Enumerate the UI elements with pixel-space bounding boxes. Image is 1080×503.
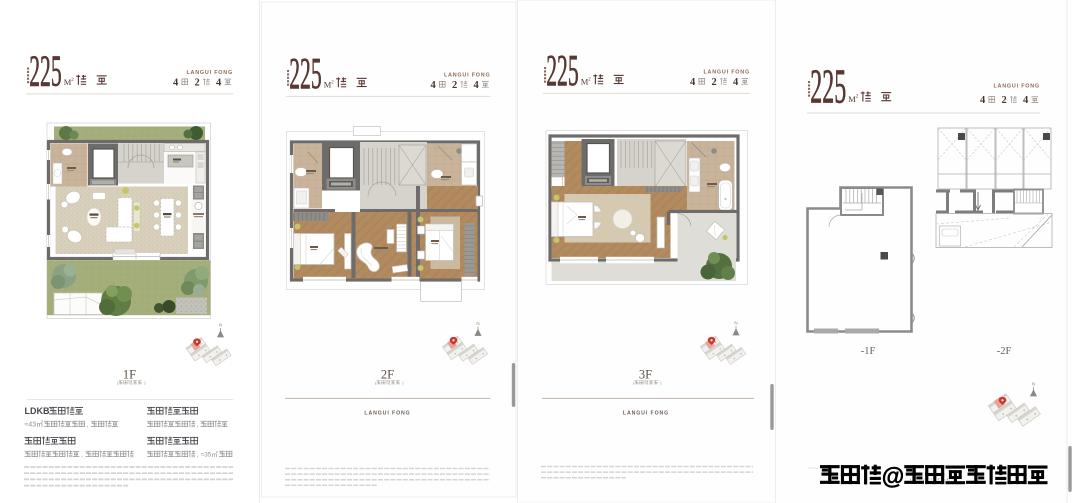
svg-text:LANGUI FONG: LANGUI FONG [703, 70, 750, 76]
svg-text:4: 4 [216, 77, 222, 88]
svg-text:4: 4 [733, 77, 739, 88]
svg-text:,: , [197, 422, 199, 429]
svg-text:225: 225 [810, 58, 846, 113]
svg-text:4: 4 [474, 80, 480, 91]
svg-text:2: 2 [712, 77, 717, 88]
svg-text:3F: 3F [639, 368, 652, 382]
svg-text:N: N [219, 323, 222, 328]
svg-text:N: N [476, 321, 479, 326]
svg-text:LANGUI FONG: LANGUI FONG [364, 411, 410, 417]
svg-text:LANGUI FONG: LANGUI FONG [993, 84, 1040, 90]
svg-text:LANGUI FONG: LANGUI FONG [623, 411, 669, 417]
svg-text:4: 4 [1023, 95, 1029, 106]
svg-text:-2F: -2F [997, 346, 1012, 357]
svg-text:4: 4 [690, 77, 696, 88]
svg-text:,: , [87, 422, 89, 429]
svg-text:,: , [197, 452, 199, 459]
svg-text:4: 4 [431, 80, 437, 91]
svg-text:4: 4 [980, 95, 986, 106]
svg-text:LDKB: LDKB [25, 406, 50, 416]
svg-text:2: 2 [452, 80, 457, 91]
svg-text:N: N [1032, 382, 1035, 387]
svg-text:225: 225 [289, 49, 322, 98]
svg-text:2F: 2F [381, 368, 394, 382]
svg-text:,: , [81, 452, 83, 459]
svg-text:-1F: -1F [861, 346, 876, 357]
svg-text:≈35㎡: ≈35㎡ [201, 450, 219, 459]
svg-text:4: 4 [173, 77, 179, 88]
svg-text:LANGUI FONG: LANGUI FONG [444, 73, 491, 79]
svg-text:1F: 1F [123, 368, 136, 382]
svg-text:@: @ [882, 463, 904, 489]
svg-text:2: 2 [1002, 95, 1007, 106]
svg-text:N: N [734, 321, 737, 326]
svg-text:225: 225 [546, 46, 579, 95]
svg-text:LANGUI FONG: LANGUI FONG [186, 70, 233, 76]
svg-text:≈43㎡: ≈43㎡ [25, 421, 44, 429]
svg-text:225: 225 [29, 47, 62, 96]
svg-text:2: 2 [195, 77, 200, 88]
